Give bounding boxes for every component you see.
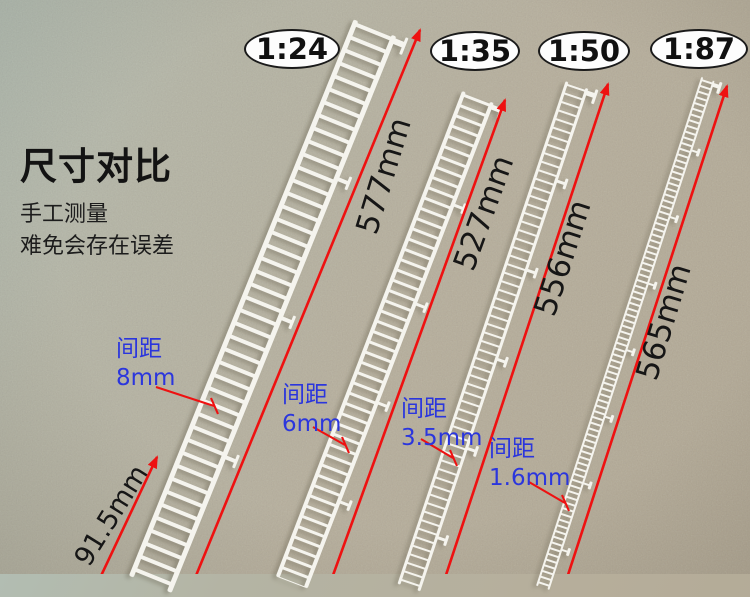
scale-badge-1-24: 1:24 — [244, 29, 340, 69]
spacing-title: 间距 — [282, 381, 341, 410]
ladder-bracket — [627, 349, 633, 353]
ladder-bracket — [340, 501, 349, 507]
scale-badge-label: 1:50 — [548, 37, 620, 66]
spacing-label-1-87: 间距 1.6mm — [489, 435, 570, 494]
ladder-bracket — [557, 180, 566, 185]
ladder-bracket — [226, 456, 237, 463]
spacing-label-1-35: 间距 6mm — [282, 381, 341, 440]
scale-badge-1-35: 1:35 — [430, 31, 520, 71]
ladder-bracket — [338, 178, 349, 185]
ladder-rail — [167, 35, 396, 593]
ladder-bracket — [438, 536, 447, 541]
ladder-bracket — [416, 303, 425, 309]
scale-badge-label: 1:35 — [439, 37, 511, 66]
ladder-bracket — [670, 216, 676, 220]
note-line-2: 难免会存在误差 — [20, 228, 174, 260]
ladder-bracket — [282, 317, 293, 324]
spacing-label-1-50: 间距 3.5mm — [401, 395, 482, 454]
spacing-value: 8mm — [116, 364, 175, 393]
ladder-bracket — [562, 549, 568, 553]
ladder-bracket — [491, 105, 501, 113]
ladder-bracket — [454, 204, 463, 210]
ladder-bracket — [692, 150, 698, 154]
ladder-bracket — [378, 402, 387, 408]
spacing-title: 间距 — [116, 335, 175, 364]
spacing-label-1-24: 间距 8mm — [116, 335, 175, 394]
spacing-value: 6mm — [282, 410, 341, 439]
ladder-model-1-24 — [129, 19, 396, 593]
ladder-bracket — [527, 269, 536, 274]
scale-badge-label: 1:24 — [256, 35, 328, 64]
spacing-title: 间距 — [401, 395, 482, 424]
ladder-bracket — [393, 38, 405, 47]
scale-badge-label: 1:87 — [663, 35, 735, 64]
ladder-bracket — [497, 358, 506, 363]
spacing-title: 间距 — [489, 435, 570, 464]
ladder-bracket — [586, 91, 595, 98]
page-title: 尺寸对比 — [20, 136, 172, 190]
ladder-bracket — [605, 416, 611, 420]
scale-badge-1-87: 1:87 — [650, 29, 748, 69]
spacing-value: 1.6mm — [489, 464, 570, 493]
product-photo: { "title": "尺寸对比", "note_line1": "手工测量",… — [0, 0, 750, 574]
spacing-value: 3.5mm — [401, 424, 482, 453]
ladder-bracket — [713, 83, 720, 89]
note-line-1: 手工测量 — [20, 196, 108, 228]
scale-badge-1-50: 1:50 — [538, 31, 630, 71]
ladder-rungs — [133, 23, 392, 592]
ladder-bracket — [584, 483, 590, 487]
